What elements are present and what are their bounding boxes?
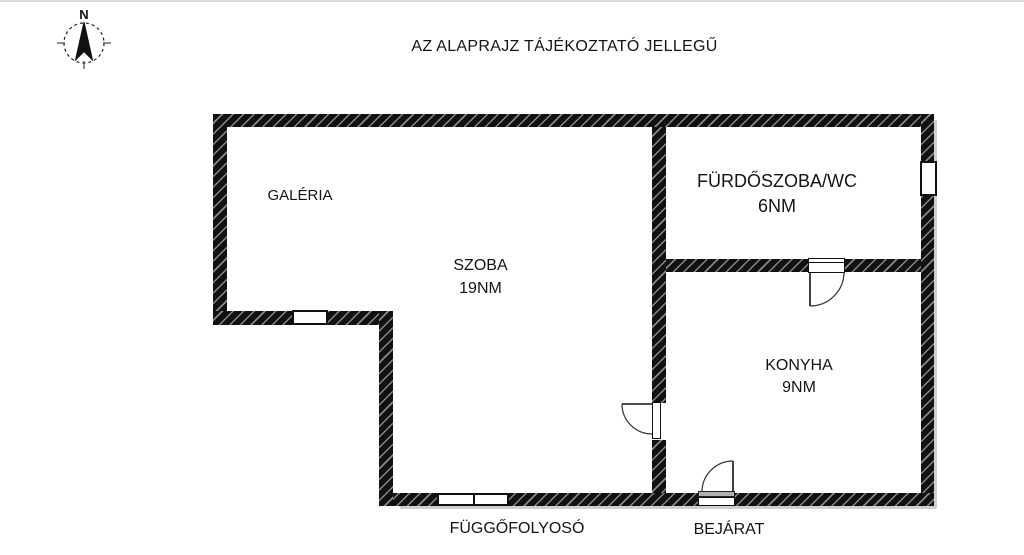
room-label-szoba: SZOBA 19NM (418, 254, 543, 300)
scan-edge-top (0, 0, 1024, 2)
bathroom-door-threshold (808, 258, 845, 273)
room-label-galeria: GALÉRIA (238, 185, 362, 207)
annotation-corridor: FÜGGŐFOLYOSÓ (437, 518, 597, 540)
wall-bath-divider-left (666, 259, 808, 272)
compass-north-label: N (79, 7, 88, 22)
room-label-furdoszoba: FÜRDŐSZOBA/WC 6NM (666, 169, 888, 219)
corridor-window (437, 493, 509, 506)
wall-top (213, 114, 934, 127)
wall-bath-divider-right (845, 259, 921, 272)
room-name: KONYHA (689, 355, 909, 377)
room-area: 9NM (689, 377, 909, 399)
wall-left-lower (379, 311, 393, 506)
corridor-window-divider (473, 495, 475, 504)
szoba-kitchen-door (622, 404, 652, 434)
scan-shadow-bottom (400, 506, 936, 509)
szoba-kitchen-door-leaf (652, 402, 661, 439)
page-title: AZ ALAPRAJZ TÁJÉKOZTATÓ JELLEGŰ (382, 36, 747, 58)
room-name: FÜRDŐSZOBA/WC (666, 169, 888, 194)
compass: N (57, 7, 111, 69)
wall-divider-vertical-lower (652, 440, 666, 493)
entrance-door (702, 461, 733, 492)
north-arrow-icon (76, 22, 93, 60)
entrance-door-sill (698, 497, 735, 506)
room-area: 19NM (418, 277, 543, 300)
bathroom-window (920, 161, 937, 196)
room-label-konyha: KONYHA 9NM (689, 355, 909, 399)
compass-circle (64, 23, 104, 63)
floor-plan-page: AZ ALAPRAJZ TÁJÉKOZTATÓ JELLEGŰ N (0, 0, 1024, 555)
room-name: SZOBA (418, 254, 543, 277)
bathroom-door (810, 272, 844, 306)
room-area: 6NM (666, 194, 888, 219)
annotation-entrance: BEJÁRAT (664, 519, 794, 541)
wall-divider-vertical-upper (652, 127, 666, 403)
bathroom-door-threshold-line (809, 262, 844, 263)
galeria-window (292, 310, 328, 325)
wall-left-upper (213, 114, 227, 325)
